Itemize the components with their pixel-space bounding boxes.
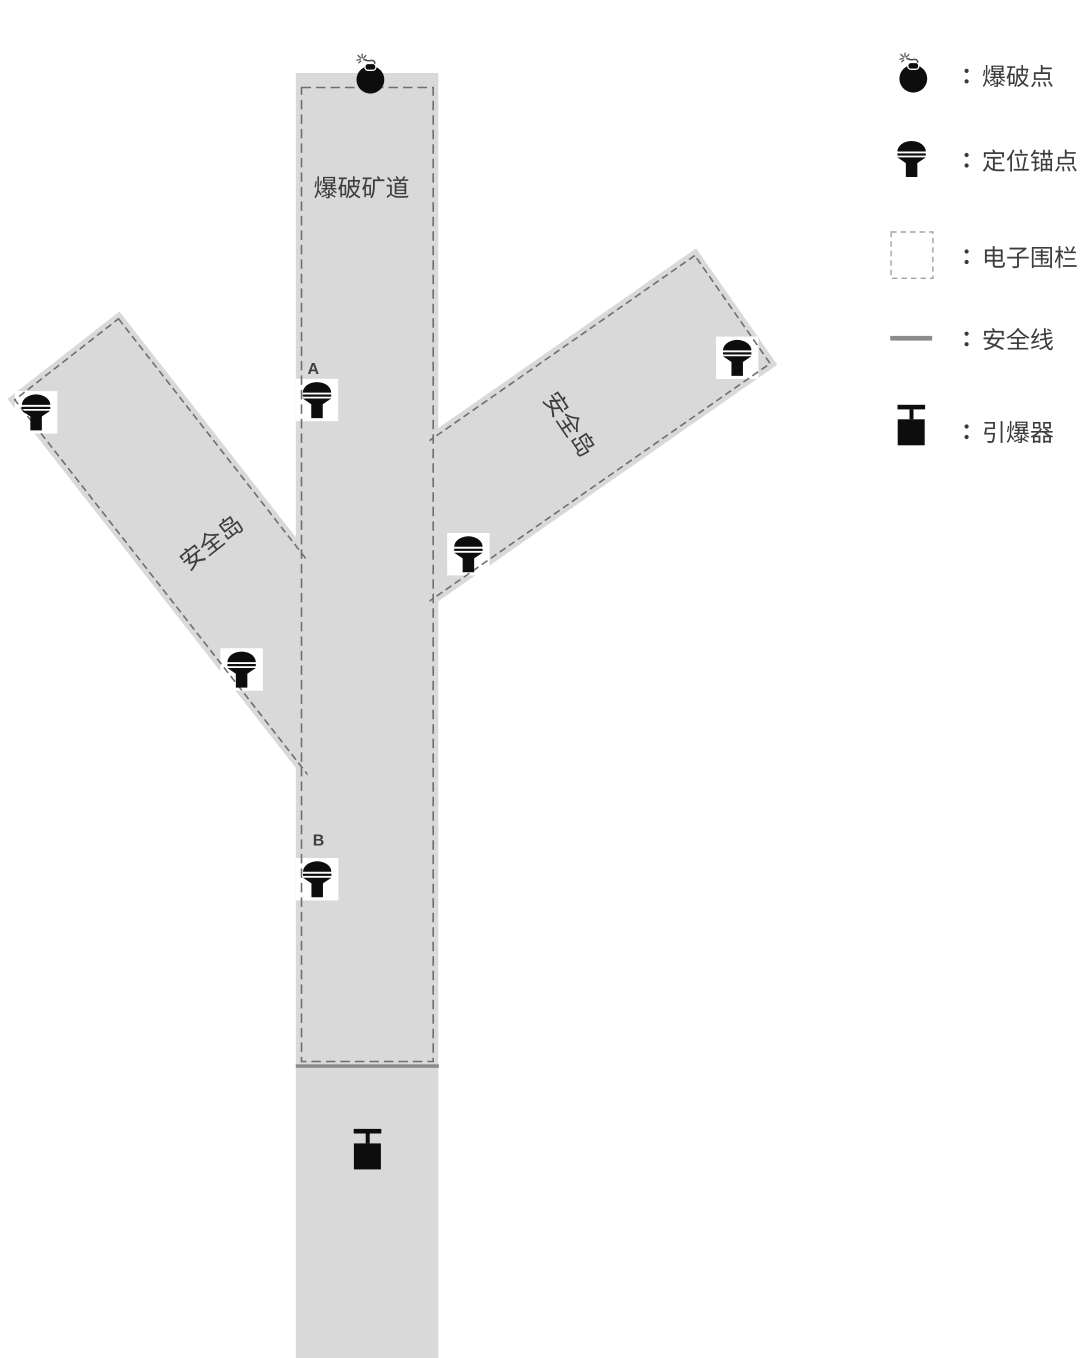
svg-text:B: B xyxy=(313,833,325,850)
svg-text:A: A xyxy=(308,361,320,378)
